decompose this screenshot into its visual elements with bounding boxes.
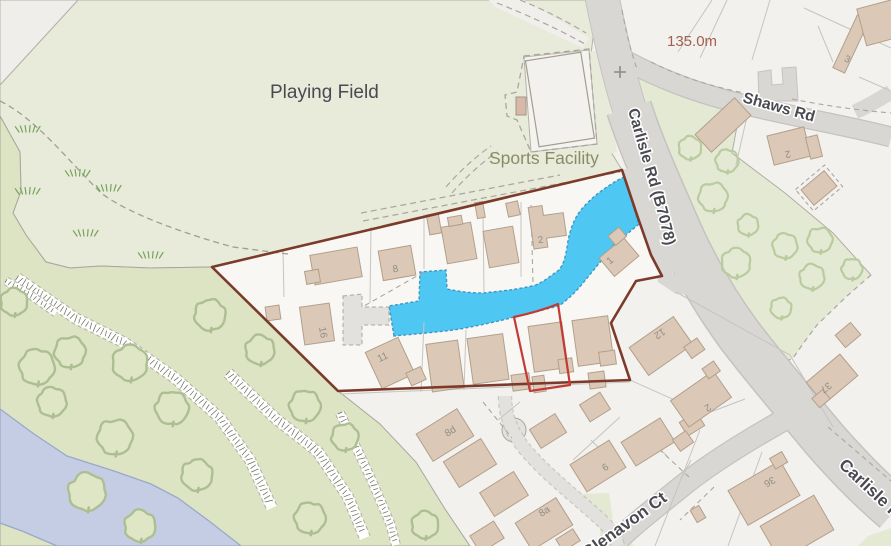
svg-text:Sports Facility: Sports Facility — [489, 148, 599, 168]
svg-text:Playing Field: Playing Field — [270, 82, 379, 103]
svg-text:135.0m: 135.0m — [667, 33, 717, 50]
